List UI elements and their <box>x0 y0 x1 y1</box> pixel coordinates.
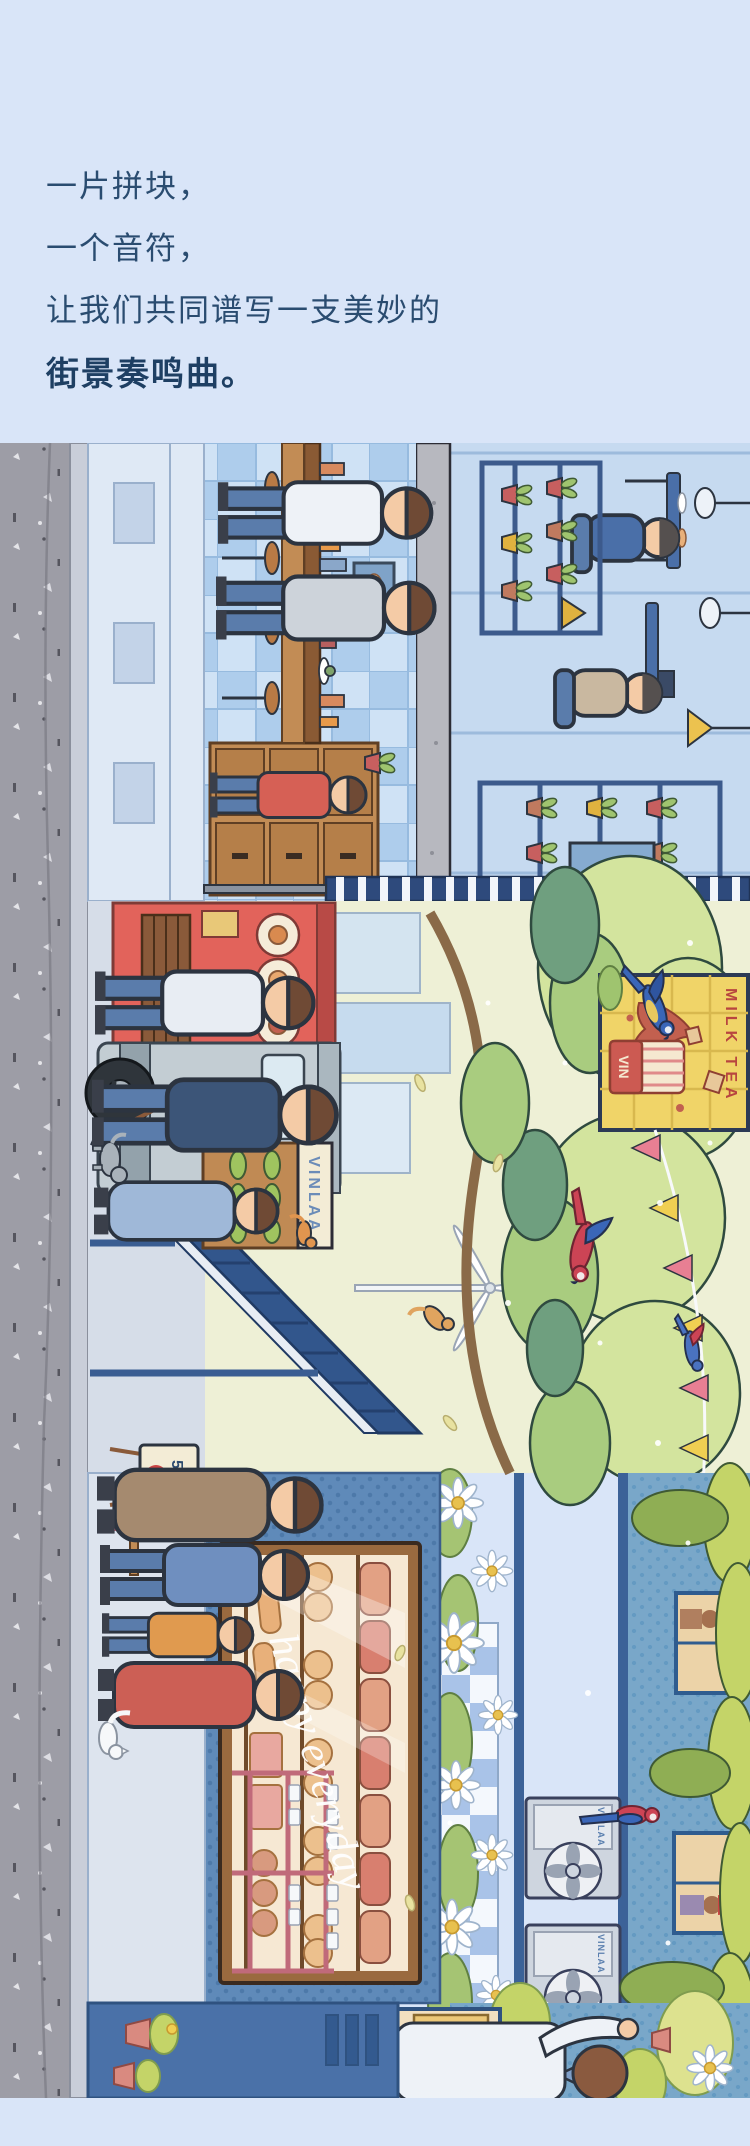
hero-headline: 街景奏鸣曲。 <box>46 342 442 406</box>
ac-brand-text: VINLAA <box>596 1934 606 1974</box>
ac-unit-1: VINLAA <box>526 1798 620 1899</box>
curb <box>70 443 88 2098</box>
street-scene-illustration: VIN MILK TEA <box>0 443 750 2098</box>
bread-display-window: happy everyday <box>220 1543 420 1983</box>
ac-brand-text: VINLAA <box>596 1807 606 1847</box>
hero-line-1: 一片拼块， <box>46 156 442 218</box>
cafe-section <box>88 443 750 901</box>
hero-text: 一片拼块， 一个音符， 让我们共同谱写一支美妙的 街景奏鸣曲。 <box>46 156 442 406</box>
person-lightblue <box>94 1182 278 1240</box>
cafe-base-wall <box>88 443 204 901</box>
person-queue <box>98 1663 302 1727</box>
promo-page: 一片拼块， 一个音符， 让我们共同谱写一支美妙的 街景奏鸣曲。 CITY LEI… <box>0 0 750 2146</box>
hero-line-3: 让我们共同谱写一支美妙的 <box>46 280 442 342</box>
road <box>0 443 70 2098</box>
hero-line-2: 一个音符， <box>46 218 442 280</box>
kiosk-person <box>395 2017 638 2098</box>
blue-daisy-icon <box>687 2045 733 2091</box>
cup-label-text: VIN <box>616 1055 632 1078</box>
billboard-title-text: MILK TEA <box>722 988 739 1104</box>
bakery-section: VINLAA VINLAA <box>88 1445 750 2098</box>
pink-pot-icon <box>652 2028 670 2052</box>
milk-tea-billboard: VIN MILK TEA <box>598 966 748 1130</box>
person-queue <box>97 1470 321 1540</box>
milk-tea-cup: VIN <box>610 1041 684 1093</box>
